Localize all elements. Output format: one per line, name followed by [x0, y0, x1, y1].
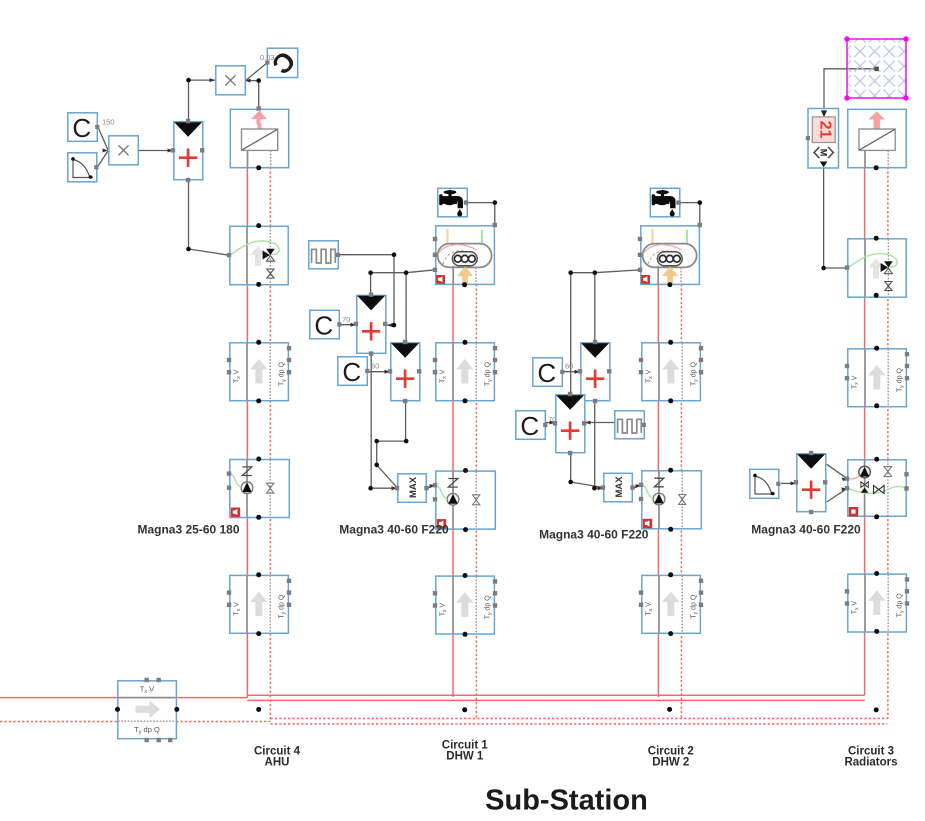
svg-text:70: 70 [342, 315, 350, 324]
svg-text:M: M [819, 149, 829, 157]
svg-text:150: 150 [102, 118, 115, 127]
svg-text:Magna3 40-60 F220: Magna3 40-60 F220 [751, 523, 861, 537]
svg-text:60: 60 [565, 362, 573, 371]
svg-text:Magna3 40-60 F220: Magna3 40-60 F220 [539, 528, 649, 542]
svg-text:DHW 2: DHW 2 [652, 756, 689, 768]
svg-text:Magna3 25-60 180: Magna3 25-60 180 [137, 523, 239, 537]
svg-text:Radiators: Radiators [844, 756, 897, 768]
svg-text:DHW 1: DHW 1 [446, 751, 484, 763]
svg-text:Sub-Station: Sub-Station [485, 785, 648, 817]
svg-text:21: 21 [816, 121, 833, 139]
svg-text:60: 60 [371, 362, 379, 371]
svg-text:Magna3 40-60 F220: Magna3 40-60 F220 [339, 523, 449, 537]
svg-text:AHU: AHU [265, 756, 290, 768]
